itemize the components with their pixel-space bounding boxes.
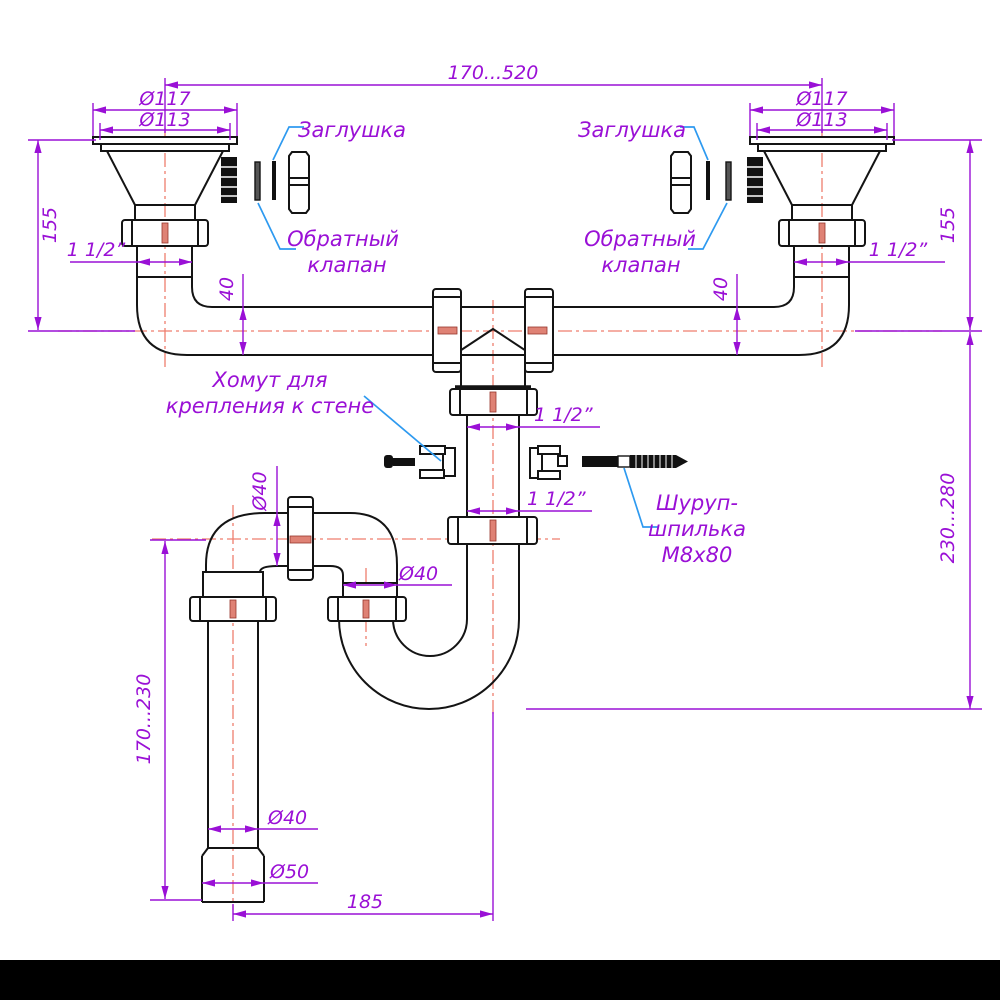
dim-right-flange-inner: Ø113 [795,109,847,131]
label-stud-2: шпилька [648,517,746,541]
dim-tail-height-value: 170...230 [133,674,155,765]
dim-arm-dia-value: Ø40 [398,563,438,585]
label-check-valve-left-2: клапан [307,253,386,277]
dim-tee-thread-upper-value: 1 1/2” [534,404,593,426]
right-exploded-parts [671,152,731,213]
label-check-valve-left-1: Обратный [287,227,399,251]
siphon-technical-drawing: 170...520 Ø117 Ø113 Ø117 Ø113 [0,0,1000,1000]
dim-height-left: 155 [28,140,135,331]
clamp-left-half [420,446,455,478]
dim-thread-right-value: 1 1/2” [869,239,928,261]
dim-right-flange-outer: Ø117 [795,88,847,110]
dim-left-flange-outer: Ø117 [138,88,190,110]
dim-elbow-dia: Ø40 [249,466,277,566]
drawing-canvas: 170...520 Ø117 Ø113 Ø117 Ø113 [0,0,1000,1000]
left-overflow-spigot [221,157,237,203]
right-plug-disc [706,161,710,200]
dim-pipe-right-value: 40 [710,277,732,301]
dim-tee-thread-lower: 1 1/2” [467,488,592,511]
label-plug-left: Заглушка [298,118,406,142]
right-overflow-spigot [747,157,763,203]
stud-m8x80 [582,455,688,468]
dim-bottom-offset-value: 185 [347,891,383,913]
label-wall-clamp-2: крепления к стене [166,394,374,418]
dim-top-span: 170...520 [165,62,822,133]
label-plug-right: Заглушка [578,118,686,142]
label-check-valve-right-1: Обратный [584,227,696,251]
dim-pipe-left-value: 40 [216,277,238,301]
dim-outlet-dia-value: Ø50 [269,861,309,883]
dim-pipe-left: 40 [216,274,243,355]
label-stud-1: Шуруп- [656,491,738,515]
bottom-letterbox-bar [0,960,1000,1000]
left-check-valve-disc [255,162,260,200]
dim-left-flange-inner: Ø113 [138,109,190,131]
dim-pipe-right: 40 [710,274,737,355]
dim-top-span-value: 170...520 [448,62,539,84]
left-plug-disc [272,161,276,200]
dim-thread-left-value: 1 1/2” [67,239,126,261]
dim-height-right: 155 230...280 [526,140,982,709]
dim-tee-thread-lower-value: 1 1/2” [527,488,586,510]
left-exploded-parts [255,152,309,213]
label-check-valve-right-2: клапан [601,253,680,277]
dim-outlet-dia: Ø50 [202,861,318,883]
right-check-valve-disc [726,162,731,200]
trap [328,415,537,709]
tail-socket [203,572,263,597]
dim-tail-height: 170...230 [133,540,206,900]
dim-elbow-dia-value: Ø40 [249,471,271,511]
dim-height-right-value: 155 [937,207,959,243]
right-cap-nut [671,152,691,213]
clamp-screw [384,455,415,468]
dim-tail-dia: Ø40 [208,807,318,829]
clamp-right-half [530,446,567,479]
dim-height-left-value: 155 [39,207,61,243]
left-cap-nut [289,152,309,213]
label-wall-clamp-1: Хомут для [212,368,328,392]
dimensions: 170...520 Ø117 Ø113 Ø117 Ø113 [28,62,982,921]
label-stud-3: М8х80 [662,543,733,567]
dim-trap-height-value: 230...280 [937,473,959,564]
dim-tail-dia-value: Ø40 [267,807,307,829]
